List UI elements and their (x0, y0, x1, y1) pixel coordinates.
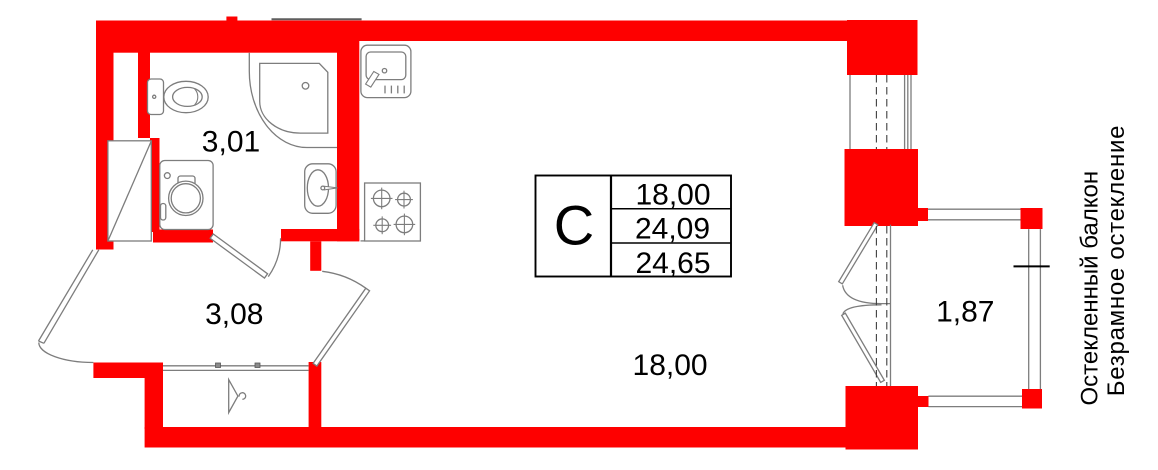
svg-text:24,65: 24,65 (635, 247, 710, 280)
svg-text:3,08: 3,08 (205, 298, 263, 331)
svg-text:18,00: 18,00 (633, 349, 708, 382)
svg-text:24,09: 24,09 (635, 213, 710, 246)
svg-text:18,00: 18,00 (635, 178, 710, 211)
svg-text:3,01: 3,01 (202, 126, 260, 159)
svg-text:Безрамное остекление: Безрамное остекление (1103, 125, 1130, 396)
svg-text:1,87: 1,87 (936, 296, 994, 329)
svg-text:Остекленный балкон: Остекленный балкон (1077, 171, 1104, 406)
svg-text:С: С (554, 193, 594, 256)
